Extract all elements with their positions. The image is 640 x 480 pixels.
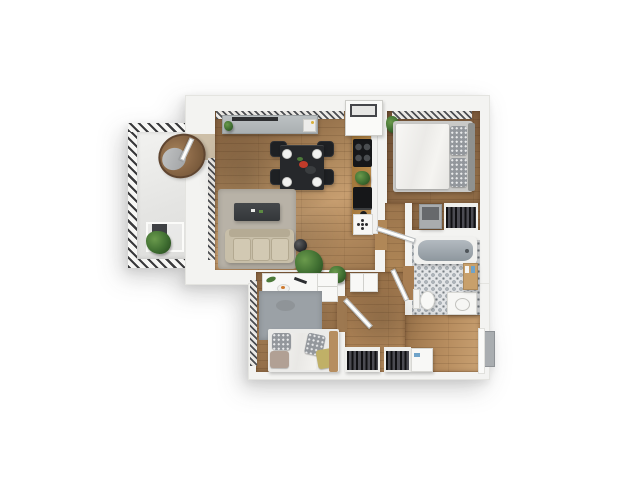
bedroom-1-top-window bbox=[392, 111, 472, 119]
plate-1 bbox=[282, 149, 292, 159]
coffee-machine bbox=[303, 119, 316, 132]
sofa-cushion-1 bbox=[233, 238, 251, 261]
closet-cabinet-inner bbox=[422, 207, 439, 220]
plate-2 bbox=[312, 149, 322, 159]
bed-2-pillow-taupe bbox=[270, 351, 289, 368]
sideboard-plant bbox=[224, 121, 233, 131]
oven bbox=[353, 187, 372, 210]
washing-machine-door bbox=[455, 298, 470, 311]
closet-wardrobe-rail bbox=[444, 203, 478, 230]
desk-plate-food bbox=[281, 286, 285, 289]
hall-shelf-line bbox=[363, 274, 364, 291]
plate-3 bbox=[282, 177, 292, 187]
bottle-white bbox=[465, 266, 469, 273]
toilet-bowl bbox=[420, 291, 435, 310]
herb-sprig bbox=[297, 157, 303, 161]
bathtub-drain bbox=[465, 249, 469, 253]
tv-console-item-green bbox=[259, 210, 263, 213]
toilet-tank bbox=[413, 289, 420, 309]
hall-wardrobe-1 bbox=[345, 347, 380, 372]
cooktop bbox=[353, 139, 372, 167]
bed-2-pillow-gray bbox=[272, 333, 291, 350]
shelf-return-line bbox=[318, 286, 337, 287]
sideboard-item-bar bbox=[232, 117, 278, 121]
bedroom-2-left-window bbox=[250, 280, 257, 366]
utility-box-label bbox=[414, 353, 420, 357]
bed-1-pillow-top bbox=[450, 126, 467, 155]
bed-1-pillow-bottom bbox=[450, 158, 467, 187]
bed-1-headboard bbox=[468, 123, 475, 191]
sofa-cushion-3 bbox=[271, 238, 289, 261]
living-left-window bbox=[208, 158, 215, 260]
floor-plan-canvas bbox=[0, 0, 640, 480]
entry-alcove-frame bbox=[350, 104, 377, 117]
bed-2-headboard bbox=[329, 331, 338, 372]
sink-icon bbox=[361, 223, 364, 226]
utility-box bbox=[411, 348, 433, 372]
entry-door-jamb bbox=[478, 328, 485, 374]
sofa-back-cushions bbox=[229, 229, 290, 237]
bed-1-duvet bbox=[396, 124, 449, 189]
counter-plant bbox=[355, 171, 370, 185]
hall-wardrobe-2 bbox=[384, 347, 411, 372]
desk-chair-back-2 bbox=[276, 300, 295, 311]
serving-plate bbox=[305, 166, 316, 174]
floors-layer bbox=[0, 0, 640, 480]
balcony-plant bbox=[146, 231, 171, 254]
sofa-cushion-2 bbox=[252, 238, 270, 261]
tv-console bbox=[234, 203, 280, 221]
bottle-blue bbox=[471, 266, 475, 273]
hall-shelf-unit bbox=[350, 273, 378, 292]
coffee-machine-light bbox=[311, 121, 314, 124]
tv-console-item-white bbox=[251, 209, 255, 212]
plate-4 bbox=[312, 177, 322, 187]
